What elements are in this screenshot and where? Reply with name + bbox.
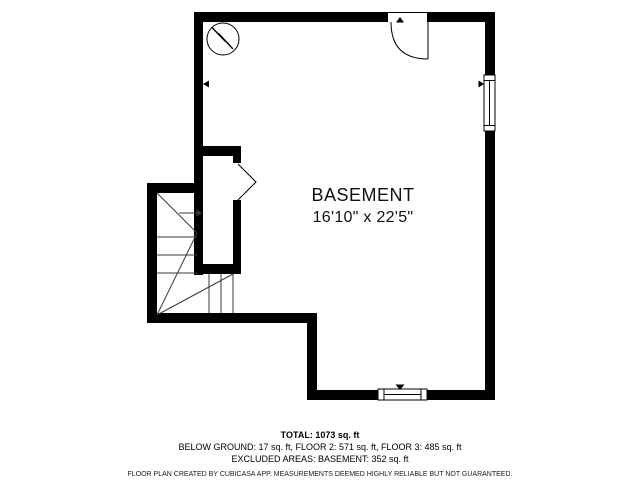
wall-top-right-segment [428, 12, 495, 22]
floor-plan-page: BASEMENT 16'10" x 22'5" TOTAL: 1073 sq. … [0, 0, 640, 480]
entry-door [387, 12, 428, 59]
room-dimensions: 16'10" x 22'5" [243, 209, 483, 227]
door-opening [387, 12, 428, 22]
floor-plan-drawing [0, 0, 640, 480]
floor-areas-text: BELOW GROUND: 17 sq. ft, FLOOR 2: 571 sq… [0, 442, 640, 452]
wall-top-left-segment [194, 12, 387, 22]
utility-circle-icon [207, 23, 239, 55]
stair-winder-line [157, 233, 197, 315]
wall-stair-left [147, 183, 157, 323]
wall-stair-bottom [147, 313, 317, 323]
total-area-text: TOTAL: 1073 sq. ft [0, 430, 640, 440]
window-right-marker-triangle-icon [479, 81, 485, 88]
room-label: BASEMENT 16'10" x 22'5" [243, 186, 483, 227]
footer-stats: TOTAL: 1073 sq. ft BELOW GROUND: 17 sq. … [0, 430, 640, 478]
closet-wall-right-upper [233, 146, 241, 163]
utility-zigzag [212, 28, 233, 50]
wall-right [485, 12, 495, 400]
door-swing-icon [391, 22, 428, 59]
closet-wall-right-lower [233, 200, 241, 274]
room-name: BASEMENT [243, 186, 483, 206]
window-bottom [378, 385, 427, 401]
stair-winder-line [157, 274, 233, 315]
closet-wall-bottom [194, 264, 241, 274]
disclaimer-text: FLOOR PLAN CREATED BY CUBICASA APP. MEAS… [0, 471, 640, 478]
left-wall-marker-triangle-icon [203, 81, 209, 88]
wall-step-vertical [307, 313, 317, 400]
excluded-areas-text: EXCLUDED AREAS: BASEMENT: 352 sq. ft [0, 454, 640, 464]
window-right [479, 75, 496, 131]
